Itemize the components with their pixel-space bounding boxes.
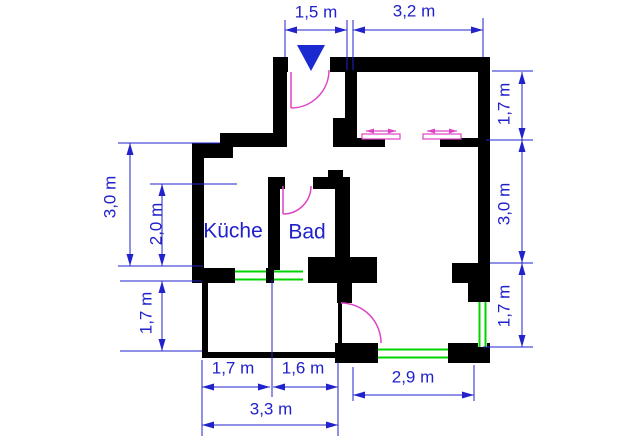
wall-segment — [337, 275, 352, 303]
dimension-arrow-icon — [273, 384, 285, 391]
dimension-arrow-icon — [353, 392, 365, 399]
dimension-arrow-icon — [159, 254, 166, 266]
wall-segment — [273, 57, 287, 143]
door-swing-arc — [291, 70, 329, 108]
balcony-wall-segment — [202, 352, 340, 358]
dimension-label-left-balcony: 1,7 m — [138, 292, 155, 335]
dimension-label-balcony-total: 3,3 m — [250, 401, 293, 418]
dimension-arrow-icon — [258, 384, 270, 391]
sliding-door-panel — [362, 134, 400, 139]
sliding-arrowhead-icon — [366, 129, 374, 134]
dimension-arrow-icon — [127, 143, 134, 155]
dimension-arrow-icon — [519, 140, 526, 152]
dimension-arrow-icon — [471, 27, 483, 34]
entrance-marker-icon — [297, 45, 325, 71]
dimension-label-balcony-left: 1,7 m — [212, 360, 255, 377]
dimension-arrow-icon — [159, 281, 166, 293]
dimension-arrow-icon — [519, 251, 526, 263]
wall-segment — [266, 268, 274, 283]
dimension-label-right-lower: 1,7 m — [496, 285, 513, 328]
dimension-label-bottom-room: 2,9 m — [392, 369, 435, 386]
door-swing-arc — [341, 303, 381, 343]
dimension-label-top-room: 3,2 m — [393, 3, 436, 20]
dimension-label-left-inner: 2,0 m — [148, 203, 165, 246]
sliding-arrowhead-icon — [427, 129, 435, 134]
dimension-arrow-icon — [519, 263, 526, 275]
dimension-arrow-icon — [159, 184, 166, 196]
door-swing-arc — [283, 186, 311, 214]
dimension-label-right-upper: 1,7 m — [496, 83, 513, 126]
wall-segment — [468, 263, 478, 302]
dimension-label-left-outer: 3,0 m — [102, 176, 119, 219]
dimension-arrow-icon — [353, 27, 365, 34]
wall-segment — [268, 177, 280, 270]
floor-plan: 1,5 m 3,2 m 1,7 m 3,0 m 1,7 m 3,0 m 2,0 … — [0, 0, 640, 440]
dimension-arrow-icon — [462, 392, 474, 399]
dimension-arrow-icon — [335, 27, 347, 34]
room-label-kitchen: Küche — [203, 221, 263, 242]
dimension-arrow-icon — [326, 384, 338, 391]
dimension-arrow-icon — [519, 335, 526, 347]
dimension-arrow-icon — [127, 254, 134, 266]
room-label-bathroom: Bad — [288, 222, 325, 243]
wall-segment — [335, 343, 378, 363]
dimension-label-top-entrance: 1,5 m — [295, 4, 338, 21]
sliding-arrowhead-icon — [449, 129, 457, 134]
dimension-arrow-icon — [202, 422, 214, 429]
balcony-wall-segment — [202, 283, 208, 358]
wall-segment — [478, 57, 490, 302]
dimension-arrow-icon — [519, 72, 526, 84]
dimension-arrow-icon — [285, 27, 297, 34]
wall-segment — [338, 303, 342, 343]
dimension-label-right-middle: 3,0 m — [496, 183, 513, 226]
dimension-arrow-icon — [159, 339, 166, 351]
dimension-arrow-icon — [202, 384, 214, 391]
dimension-arrow-icon — [519, 128, 526, 140]
dimension-label-balcony-right: 1,6 m — [282, 360, 325, 377]
wall-segment — [335, 177, 350, 270]
wall-segment — [192, 143, 204, 283]
sliding-door-panel — [423, 134, 461, 139]
sliding-arrowhead-icon — [388, 129, 396, 134]
dimension-arrow-icon — [326, 422, 338, 429]
